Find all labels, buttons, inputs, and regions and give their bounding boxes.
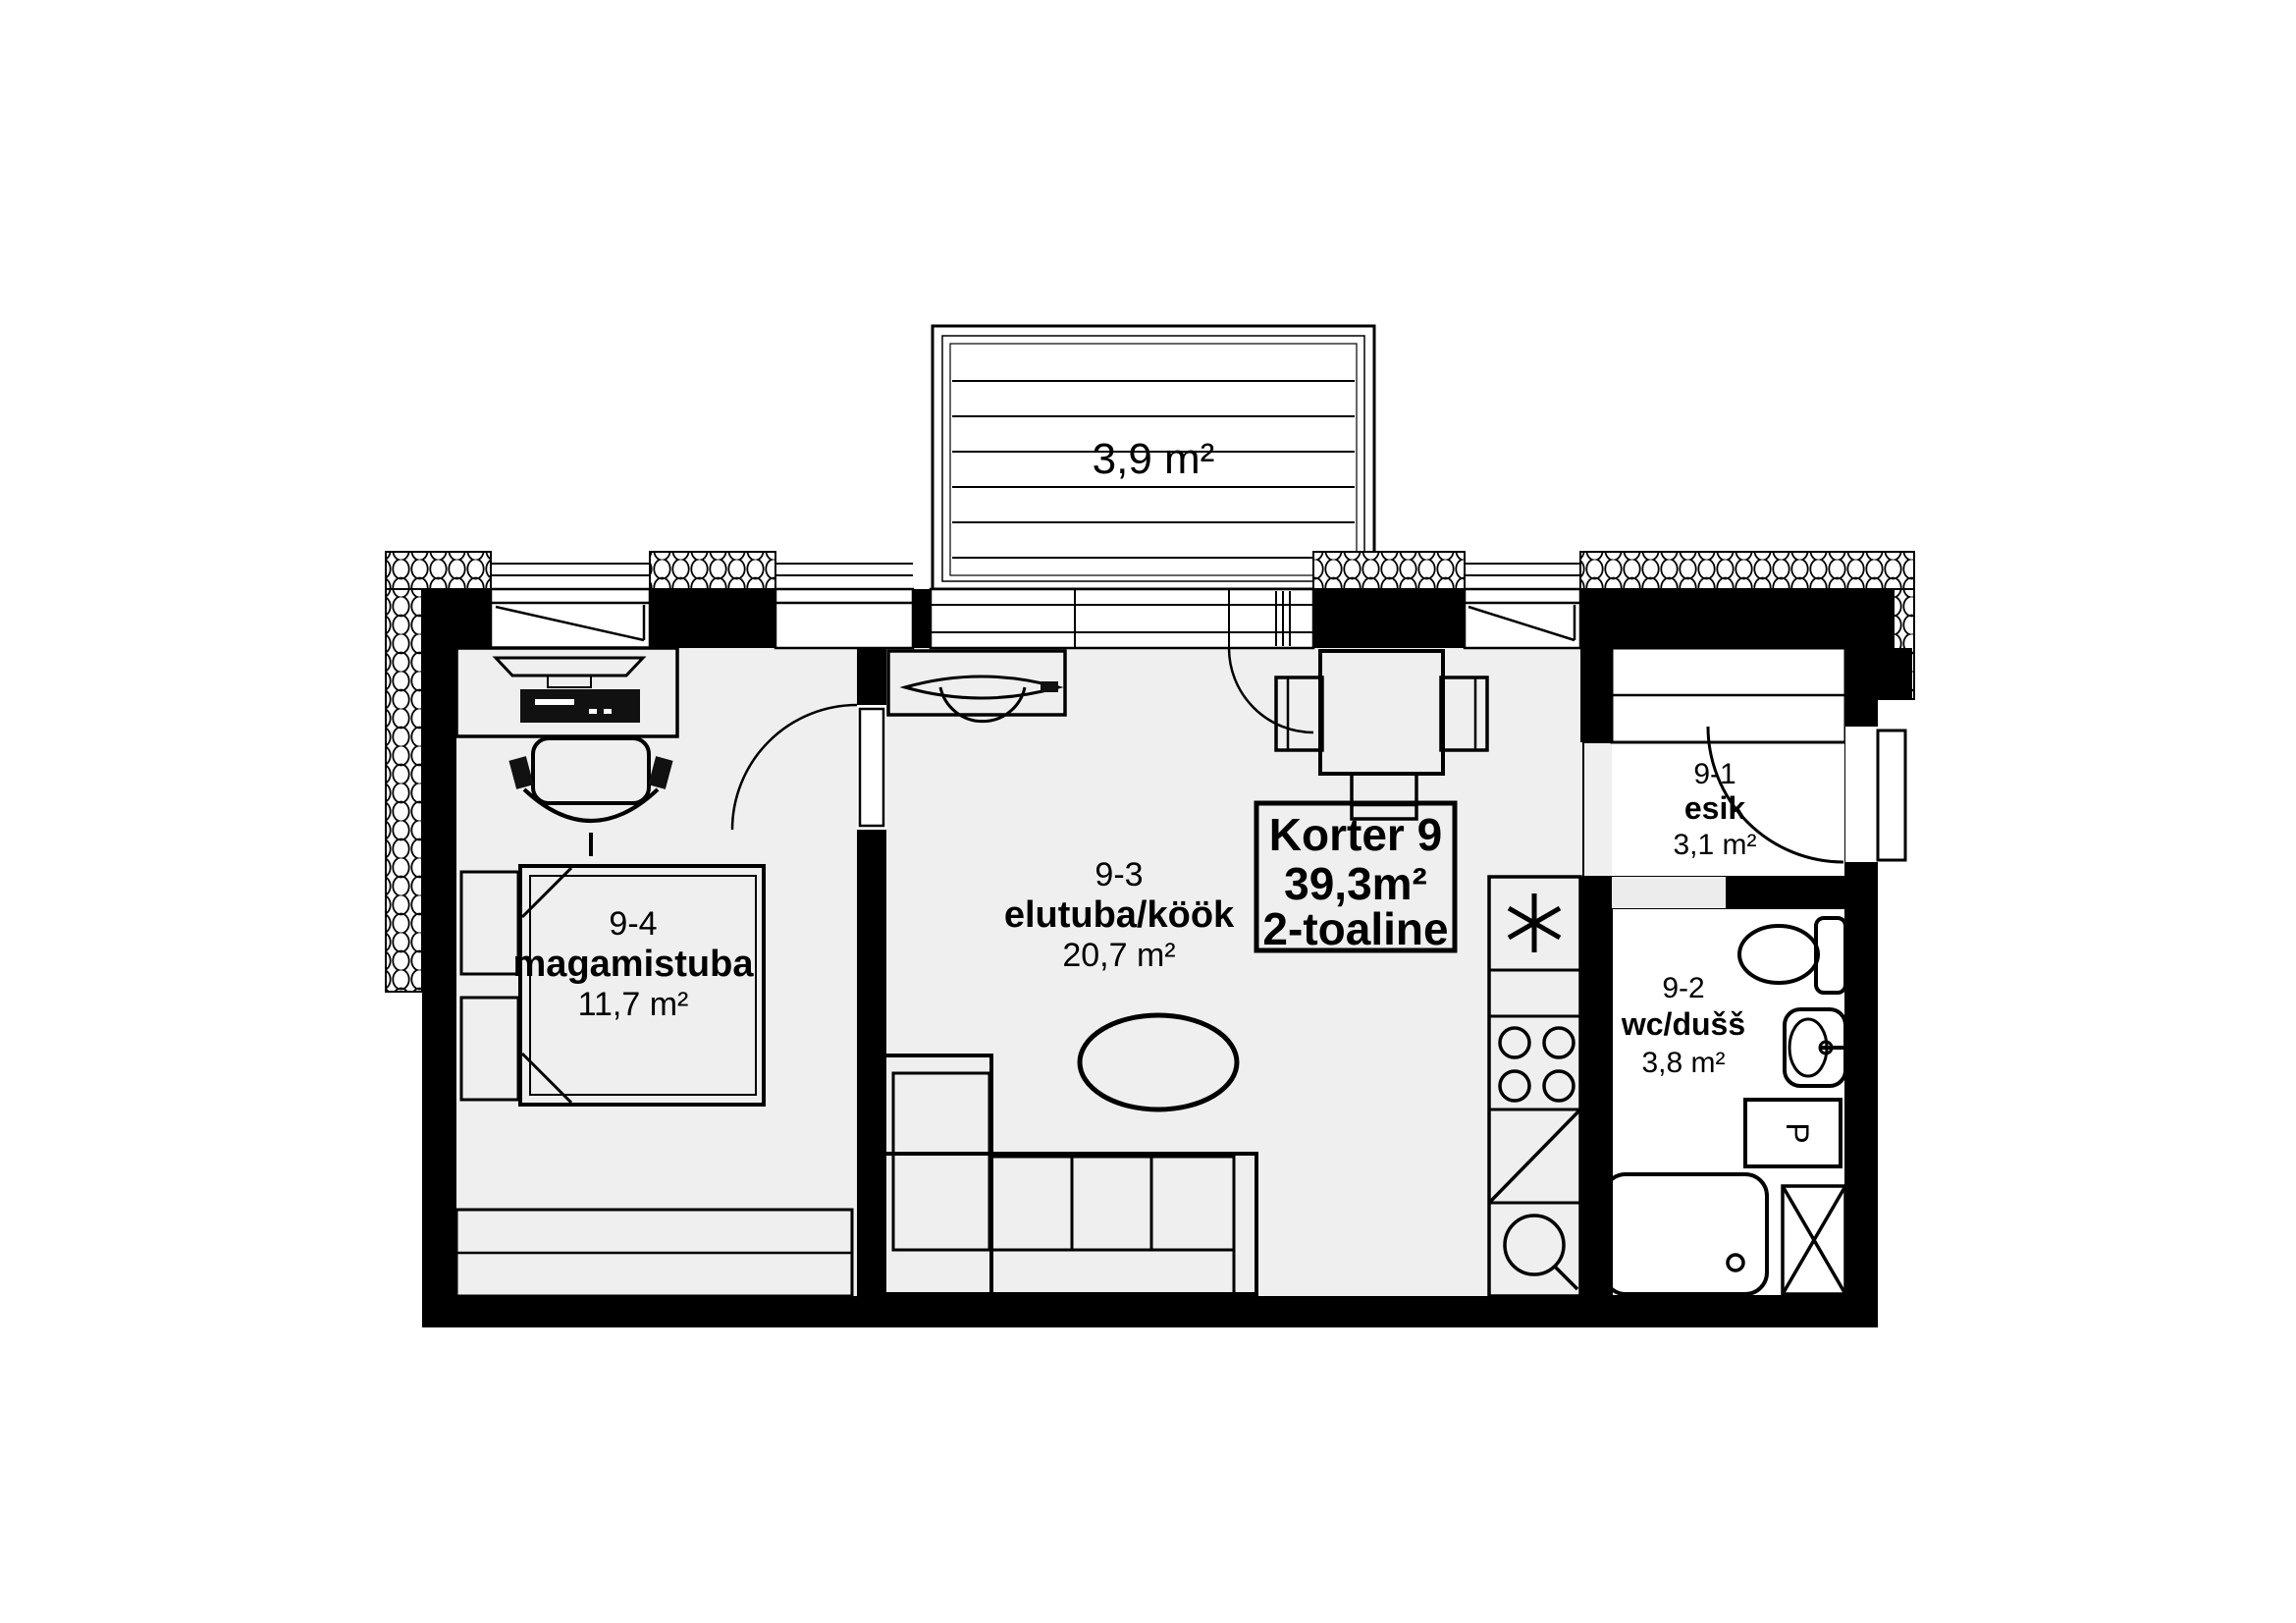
washing-machine-label: P	[1780, 1122, 1815, 1143]
entry-door-leaf	[1878, 730, 1905, 860]
washing-machine: P	[1745, 1100, 1841, 1166]
bathroom-number: 9-2	[1662, 972, 1704, 1004]
bedroom-number: 9-4	[609, 905, 657, 943]
apartment-title-box: Korter 9 39,3m² 2-toaline	[1256, 803, 1455, 954]
shower-drain	[1728, 1255, 1743, 1271]
living-name: elutuba/köök	[1004, 894, 1235, 936]
living-number: 9-3	[1095, 856, 1143, 893]
wall-right-top	[1845, 648, 1878, 727]
wall-bedroom-partition-top	[857, 648, 886, 705]
desk-keyboard	[520, 689, 640, 723]
insulation-top-right	[1580, 552, 1914, 589]
apartment-name: Korter 9	[1269, 809, 1442, 860]
wall-bath-partition	[1580, 877, 1612, 1296]
kitchen-window	[1465, 589, 1580, 648]
wall-right-bottom	[1845, 862, 1878, 1327]
apartment-area: 39,3m²	[1284, 858, 1427, 909]
bedroom-area: 11,7 m²	[578, 986, 689, 1023]
wall-top-2	[650, 589, 775, 648]
bedroom-window-2	[775, 589, 913, 648]
hall-area: 3,1 m²	[1673, 829, 1756, 861]
insulation-left	[386, 589, 422, 992]
shower-tray-icon	[1604, 1174, 1767, 1294]
bathroom-name: wc/dušš	[1621, 1006, 1745, 1042]
wall-right-stub	[1878, 648, 1912, 699]
bathroom-area: 3,8 m²	[1641, 1047, 1725, 1079]
balcony: 3,9 m²	[933, 326, 1374, 589]
floor-plan-svg: 3,9 m²	[0, 0, 2296, 1623]
insulation-top-mid	[650, 552, 775, 589]
wall-bottom	[422, 1296, 1878, 1327]
entry-door-opening	[1845, 727, 1878, 862]
wall-top-4	[1313, 589, 1465, 648]
wall-hall-bath-divider	[1726, 877, 1845, 908]
wall-left	[422, 589, 456, 1327]
bedroom-name: magamistuba	[513, 944, 755, 985]
bathroom: 9-2 wc/dušš 3,8 m² P	[1604, 877, 1845, 1296]
floor-plan-page: 3,9 m²	[0, 0, 2296, 1623]
wall-top-3	[913, 589, 931, 648]
bathroom-door-opening	[1612, 877, 1726, 908]
bedroom-window	[491, 589, 650, 648]
hall-passage-floor	[1580, 742, 1612, 877]
vent-shaft-icon	[1783, 1186, 1845, 1294]
insulation-top-right-of-balcony	[1313, 552, 1465, 589]
insulation-top-left	[386, 552, 491, 589]
bathroom-tile-floor	[1612, 908, 1845, 1296]
balcony-area-label: 3,9 m²	[1093, 435, 1215, 483]
washbasin-icon	[1785, 1009, 1845, 1086]
bedroom-door-opening	[857, 705, 886, 830]
wall-top-5	[1580, 589, 1895, 648]
living-area: 20,7 m²	[1062, 937, 1175, 974]
toilet-icon	[1739, 918, 1845, 993]
apartment-type: 2-toaline	[1262, 903, 1448, 954]
hall-number: 9-1	[1693, 758, 1735, 790]
wall-hall-partition-top	[1580, 648, 1612, 742]
